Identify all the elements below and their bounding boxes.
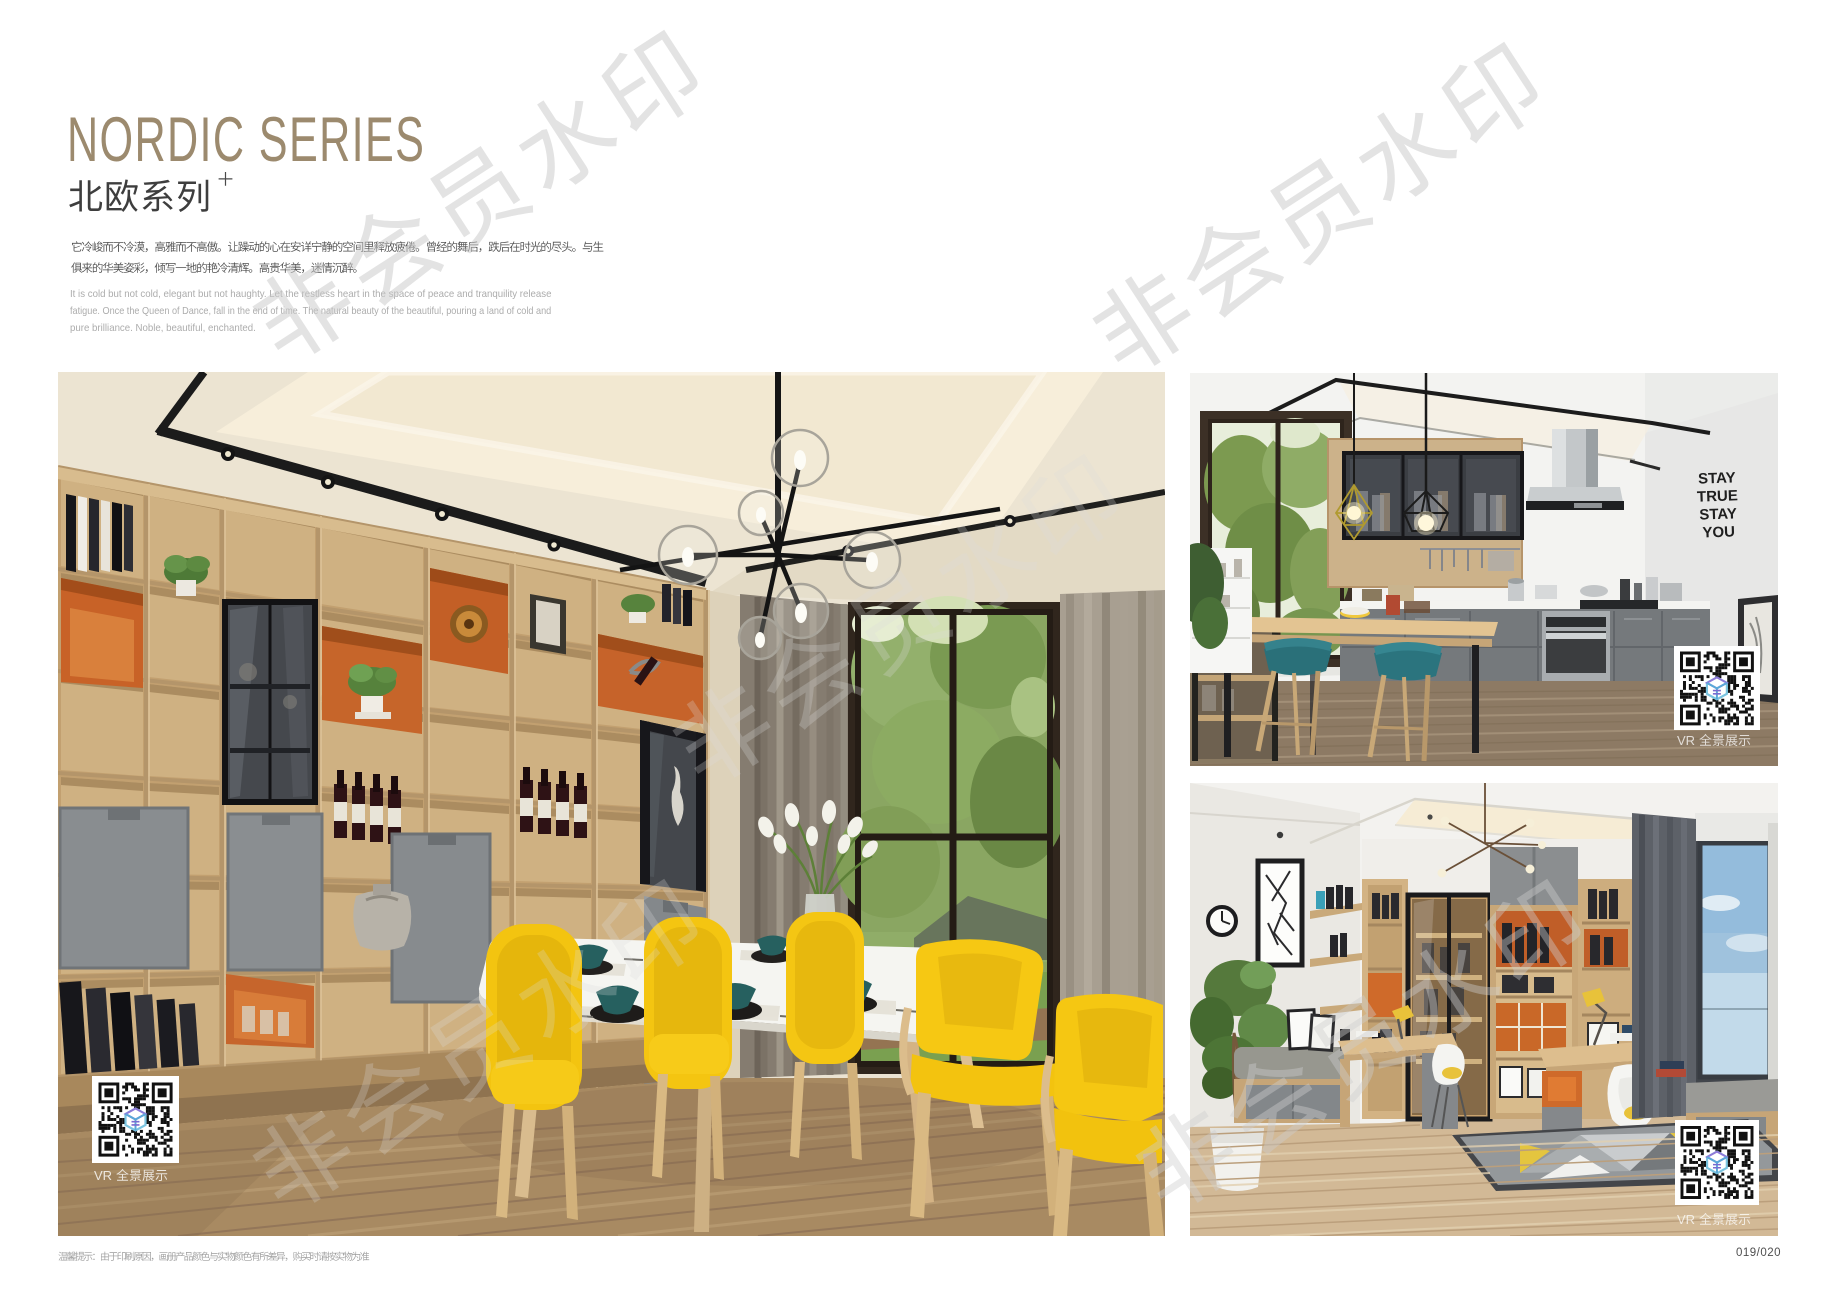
svg-text:STAY: STAY: [1699, 505, 1737, 523]
svg-text:YOU: YOU: [1702, 523, 1735, 541]
svg-text:VR: VR: [94, 1168, 112, 1183]
svg-text:VR: VR: [1677, 1212, 1695, 1227]
svg-text:STAY: STAY: [1698, 469, 1736, 487]
svg-text:TRUE: TRUE: [1697, 487, 1738, 505]
svg-text:VR: VR: [1677, 733, 1695, 748]
